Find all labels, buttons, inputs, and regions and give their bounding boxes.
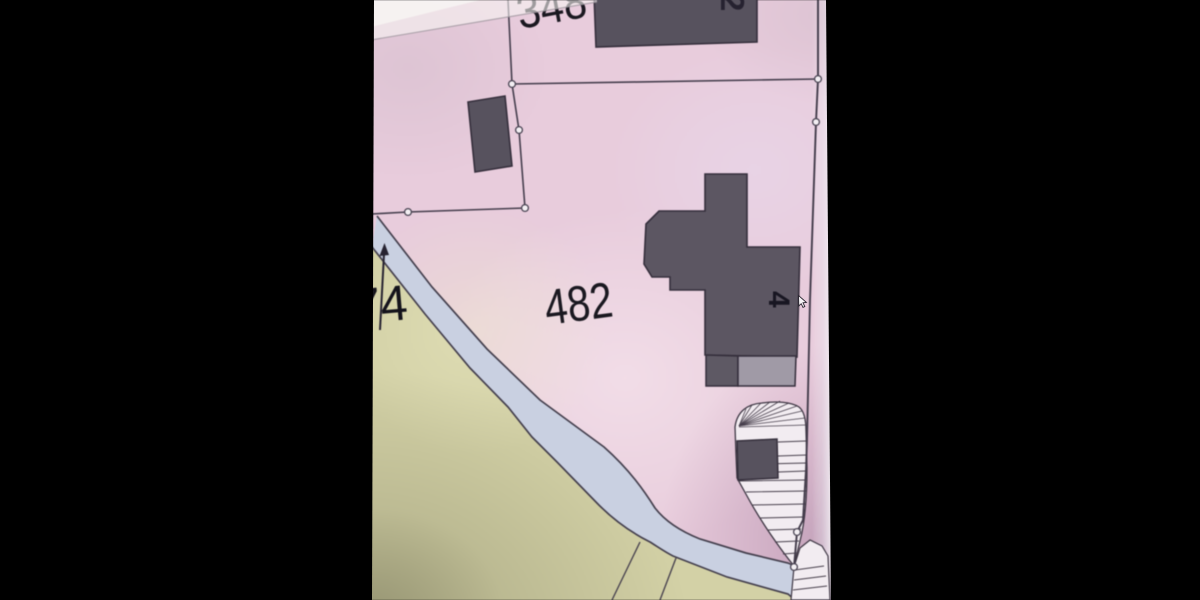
svg-text:74: 74	[351, 274, 410, 334]
svg-text:4: 4	[762, 291, 795, 308]
svg-text:2: 2	[714, 0, 751, 11]
svg-text:482: 482	[541, 272, 616, 336]
